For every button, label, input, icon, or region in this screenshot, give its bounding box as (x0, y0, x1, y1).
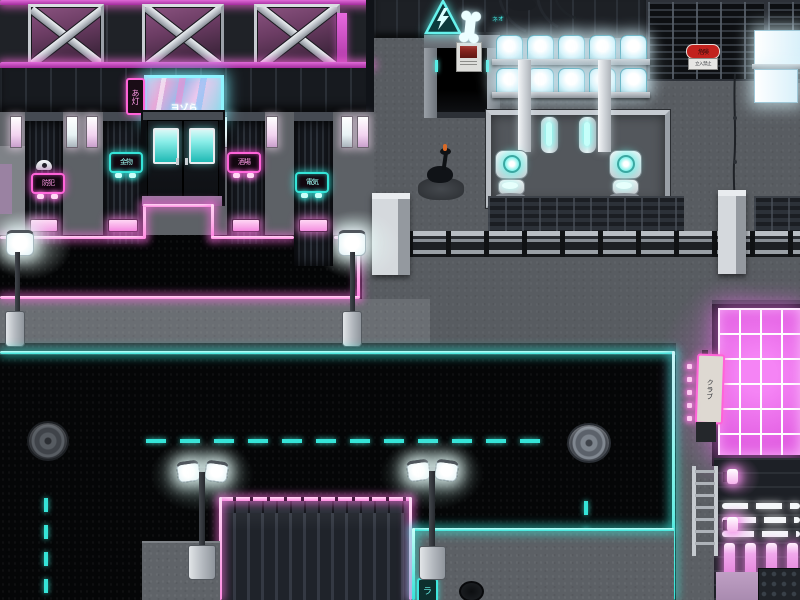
vent-band (488, 196, 684, 235)
x-window (254, 4, 340, 68)
floor-sign[interactable]: ラ (417, 578, 438, 600)
tube-lamp (540, 116, 559, 154)
neon-outline (143, 204, 146, 239)
graffiti-text: ネオ (492, 15, 505, 23)
support-pillar (598, 60, 611, 152)
sign-lamps (301, 193, 322, 198)
street-lamp-base (342, 311, 362, 347)
ladder[interactable] (692, 466, 718, 556)
window-light-strip (357, 116, 369, 148)
door-glass (189, 128, 215, 164)
bone-neon-sign (454, 7, 486, 48)
shelf (492, 59, 650, 65)
street-lamp-base (5, 311, 25, 347)
double-lamp-head (204, 460, 230, 484)
club-sign-text: クラブ (705, 378, 716, 399)
toilet-bot[interactable] (495, 150, 526, 198)
shutter-neon-strip (30, 219, 58, 232)
street-lamp-pole (350, 252, 355, 312)
neon-shop-sign[interactable]: 金物 (109, 152, 143, 173)
wall-light-panel (754, 69, 798, 103)
shutter-door[interactable] (227, 112, 265, 244)
neon-sidewalk-line (0, 296, 360, 299)
building-right-edge (366, 0, 374, 112)
shutter-neon-strip (232, 219, 260, 232)
crow[interactable] (427, 144, 461, 188)
club-sign-lamps (687, 364, 692, 421)
shutter-neon-strip (299, 219, 328, 232)
pink-wall-lamp (727, 517, 738, 532)
neon-shop-sign[interactable]: 電気 (295, 172, 329, 193)
neon-shop-sign-text: 電気 (306, 179, 318, 186)
side-neon-sign-text: あ灯 (130, 89, 141, 105)
light-jar (558, 68, 585, 94)
double-lamp-base (419, 546, 446, 580)
lavender-floor-patch (716, 572, 758, 600)
light-jar (620, 35, 647, 61)
double-lamp-head (406, 459, 432, 483)
graffiti: ネオ (492, 13, 505, 23)
shelf (492, 92, 650, 98)
window-light-strip (341, 116, 353, 148)
club-sign-base (696, 422, 716, 442)
pad-neon-top (412, 528, 674, 531)
manhole-cover[interactable] (27, 421, 69, 461)
window-light-strip (266, 116, 278, 148)
doorway-threshold (437, 112, 487, 118)
shutter-door[interactable] (103, 112, 143, 244)
neon-shop-sign-text: 酒場 (238, 159, 250, 166)
window-light-strip (66, 116, 78, 148)
wall-light-panel (754, 30, 800, 66)
double-lamp-head (434, 459, 460, 483)
doorway-accent-light (486, 60, 489, 72)
double-lamp-pole (199, 472, 205, 550)
neon-shop-sign-text: 金物 (120, 159, 132, 166)
light-jar (620, 68, 647, 94)
street-lamp-head (6, 230, 34, 256)
slat-roof-tile-row (222, 501, 409, 513)
window-light-strip (10, 116, 22, 148)
floor-sign-glyph: ラ (423, 584, 432, 597)
light-jar (527, 68, 554, 94)
sign-lamps (233, 173, 254, 178)
tube-lamp (578, 116, 597, 154)
poster-lines (460, 61, 477, 67)
x-window (28, 4, 104, 68)
crow-beak (443, 144, 447, 151)
danger-sign-panel: 立入禁止 (688, 58, 718, 70)
danger-sign-headline: 危険 (698, 47, 708, 56)
sign-lamps (37, 194, 58, 199)
light-jar (527, 35, 554, 61)
pink-glass-window (718, 308, 800, 455)
light-jar (496, 35, 523, 61)
neon-shop-sign[interactable]: 酒場 (227, 152, 261, 173)
sign-lamps (115, 173, 136, 178)
shutter-neon-strip (108, 219, 138, 232)
ladder-rungs (695, 470, 715, 554)
game-viewport: ヨゾら あ灯 防犯 金物 酒場 電気 危険 立入禁止 (0, 0, 800, 600)
danger-sign-subtext: 立入禁止 (695, 61, 711, 67)
door-handle (176, 158, 179, 165)
lane-dashes-horizontal (146, 439, 552, 443)
slat-roof (219, 497, 412, 600)
danger-sign: 危険 (686, 44, 720, 59)
slat-roof-neon-top (219, 497, 412, 501)
light-jar (558, 35, 585, 61)
neon-brick-row (722, 503, 800, 509)
club-sign[interactable]: クラブ (695, 354, 725, 425)
wall-lavender-patch (0, 164, 12, 214)
pillar (372, 193, 410, 275)
lane-dashes-vertical (44, 498, 48, 600)
concrete-pad (412, 531, 674, 600)
doorway-accent-light (435, 60, 438, 72)
double-lamp-head (176, 460, 202, 484)
street-lamp-pole (15, 252, 20, 312)
poster-picture (460, 46, 477, 58)
door-handle (185, 158, 188, 165)
neon-outline (211, 236, 294, 239)
pink-wall-lamp (727, 469, 738, 484)
neon-outline (211, 204, 214, 239)
toilet-bot[interactable] (609, 150, 640, 198)
neon-curb-line (0, 351, 675, 354)
neon-outline (143, 204, 214, 207)
light-jar (589, 35, 616, 61)
neon-shop-sign[interactable]: 防犯 (31, 173, 65, 194)
magenta-accent-strip (337, 13, 347, 68)
support-pillar (518, 60, 531, 152)
vent-band (754, 196, 800, 236)
double-lamp-base (188, 545, 216, 580)
double-lamp-pole (429, 471, 435, 550)
doorway-column (424, 48, 437, 118)
x-window (142, 4, 224, 68)
drain-cover[interactable] (459, 581, 484, 600)
crow-body (427, 166, 453, 183)
pad-neon-left (412, 528, 415, 600)
manhole-cover[interactable] (567, 423, 611, 463)
studded-panel (758, 568, 800, 600)
door-frame-top (143, 112, 223, 120)
window-light-strip (86, 116, 98, 148)
slat-roof-interior (222, 501, 409, 600)
neon-shop-sign-text: 防犯 (42, 180, 54, 187)
pillar (718, 190, 746, 274)
camera-lens (42, 163, 47, 168)
